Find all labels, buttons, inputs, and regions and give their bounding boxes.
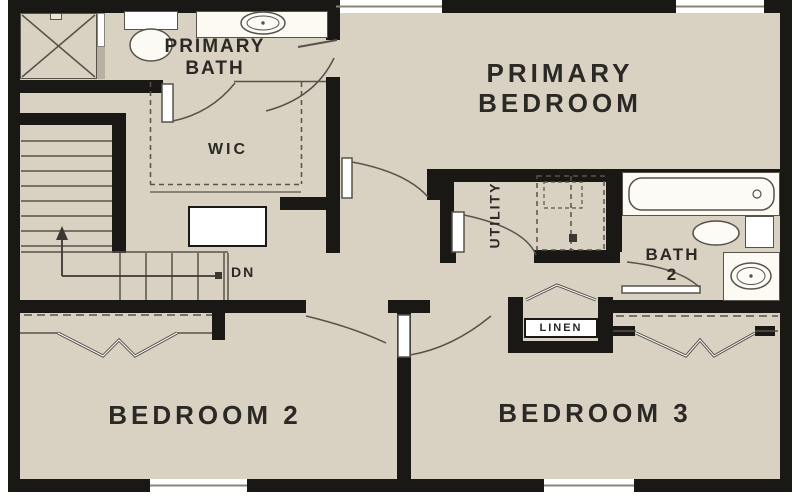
bathtub xyxy=(629,178,774,210)
bath2-toilet-bowl xyxy=(693,221,739,245)
primary-bedroom-door-arc xyxy=(352,162,428,197)
room-label-bath2: BATH 2 xyxy=(630,245,715,285)
primary-bedroom-label-line1: PRIMARY xyxy=(430,58,690,88)
bedroom2-door-arc xyxy=(306,316,386,343)
linen-bifold-door xyxy=(526,285,596,300)
stair-treads-upper xyxy=(21,141,112,246)
primary-bath-label-line1: PRIMARY xyxy=(140,36,290,58)
room-label-wic: WIC xyxy=(178,141,278,159)
bath2-door-leaf xyxy=(622,286,700,293)
room-label-linen: LINEN xyxy=(524,318,598,338)
room-label-utility: UTILITY xyxy=(486,182,502,249)
bath2-label-line2: 2 xyxy=(630,265,715,285)
bedroom3-door-arc xyxy=(410,316,491,355)
stairs-dn-label: DN xyxy=(231,264,275,280)
room-label-primary-bath: PRIMARY BATH xyxy=(140,36,290,80)
stair-direction-dot xyxy=(215,272,222,279)
utility-door-leaf xyxy=(452,212,464,252)
bedroom2-bifold-doors xyxy=(58,333,177,356)
stair-arrow-icon xyxy=(56,226,68,240)
primary-bedroom-door-leaf xyxy=(342,158,352,198)
room-label-utility-wrap: UTILITY xyxy=(468,180,520,250)
primary-bath-sink-drain xyxy=(261,21,264,24)
bath2-sink-drain xyxy=(749,274,752,277)
bath2-label-line1: BATH xyxy=(630,245,715,265)
room-label-bedroom2: BEDROOM 2 xyxy=(60,400,350,430)
room-label-primary-bedroom: PRIMARY BEDROOM xyxy=(430,58,690,118)
bedroom3-door-leaf xyxy=(398,315,410,357)
bedroom2-bifold-doors-inner xyxy=(58,333,177,356)
appliance-inner-dashed xyxy=(544,182,582,208)
floor-plan: PRIMARY BATH PRIMARY BEDROOM WIC UTILITY… xyxy=(0,0,800,500)
primary-bedroom-label-line2: BEDROOM xyxy=(430,88,690,118)
room-label-bedroom3: BEDROOM 3 xyxy=(450,398,740,428)
primary-bath-label-line2: BATH xyxy=(140,58,290,80)
wic-door-leaf xyxy=(162,84,173,122)
wic-door-arc xyxy=(173,83,235,121)
primary-bath-door-leaf xyxy=(298,40,337,47)
utility-connection-box xyxy=(569,234,577,242)
